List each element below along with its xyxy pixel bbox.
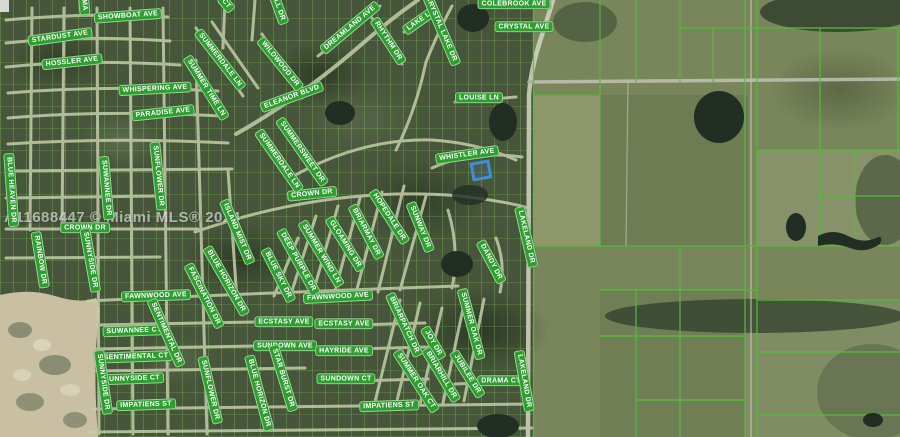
- street-label-layer: SHOWBOAT AVESTARDUST AVEHOSSLER AVEWHISP…: [0, 0, 900, 437]
- street-label: SUMMERSWEET DR: [274, 116, 329, 188]
- street-label: SENTIMENTAL CT: [100, 350, 173, 364]
- street-label: SUNWAY DR: [405, 200, 435, 253]
- highlight-lot: [470, 159, 493, 181]
- street-label: IMPATIENS ST: [116, 398, 176, 412]
- street-label: ISLAND MIST DR: [218, 198, 255, 266]
- street-label: SUNFLOWER DR: [149, 141, 168, 211]
- street-label: SUWANNEE CT: [102, 324, 165, 338]
- satellite-map[interactable]: A11688447 © Miami MLS® 2024 SHOWBOAT AVE…: [0, 0, 900, 437]
- street-label: SUNNYSIDE DR: [79, 227, 101, 293]
- street-label: ECSTASY AVE: [254, 316, 313, 327]
- street-label: HOSSLER AVE: [41, 53, 103, 71]
- street-label: RHYTHM DR: [369, 16, 407, 66]
- street-label: LAKELAND DR: [513, 206, 538, 269]
- street-label: SUWANNEE DR: [98, 156, 115, 221]
- street-label: SUNDOWN AVE: [253, 340, 317, 351]
- street-label: LL DR: [268, 0, 289, 26]
- street-label: IMPATIENS ST: [359, 399, 419, 413]
- street-label: SUNFLOWER DR: [197, 355, 224, 425]
- street-label: PARADISE AVE: [131, 104, 195, 122]
- street-label: SUNDOWN CT: [316, 373, 375, 384]
- street-label: WILDWOOD DR: [255, 36, 304, 93]
- street-label: WHISPERING AVE: [118, 81, 191, 96]
- street-label: SHOWBOAT AVE: [94, 8, 163, 24]
- street-label: BRIARPATCH DR: [384, 291, 424, 359]
- street-label: DREAMLAND AVE: [319, 0, 382, 55]
- street-label: CT: [216, 0, 236, 15]
- street-label: BLUE HORIZON DR: [243, 354, 274, 432]
- street-label: SUMMER OAK DR: [456, 287, 486, 360]
- street-label: BLUE HEAVEN DR: [3, 153, 20, 228]
- street-label: LOUISE LN: [455, 92, 503, 103]
- street-label: RAINBOW DR: [30, 231, 50, 289]
- street-label: COLEBROOK AVE: [478, 0, 551, 10]
- street-label: CRYSTAL LAKE DR: [421, 0, 462, 67]
- street-label: SUNNYSIDE CT: [100, 372, 164, 386]
- street-label: STARDUST AVE: [27, 27, 93, 47]
- street-label: HAYRIDE AVE: [315, 345, 373, 356]
- street-label: STAR BURST DR: [268, 344, 299, 413]
- street-label: ECSTASY AVE: [314, 318, 373, 329]
- street-label: MA: [77, 0, 90, 15]
- street-label: DANDY DR: [475, 238, 507, 285]
- street-label: CRYSTAL AVE: [494, 21, 553, 32]
